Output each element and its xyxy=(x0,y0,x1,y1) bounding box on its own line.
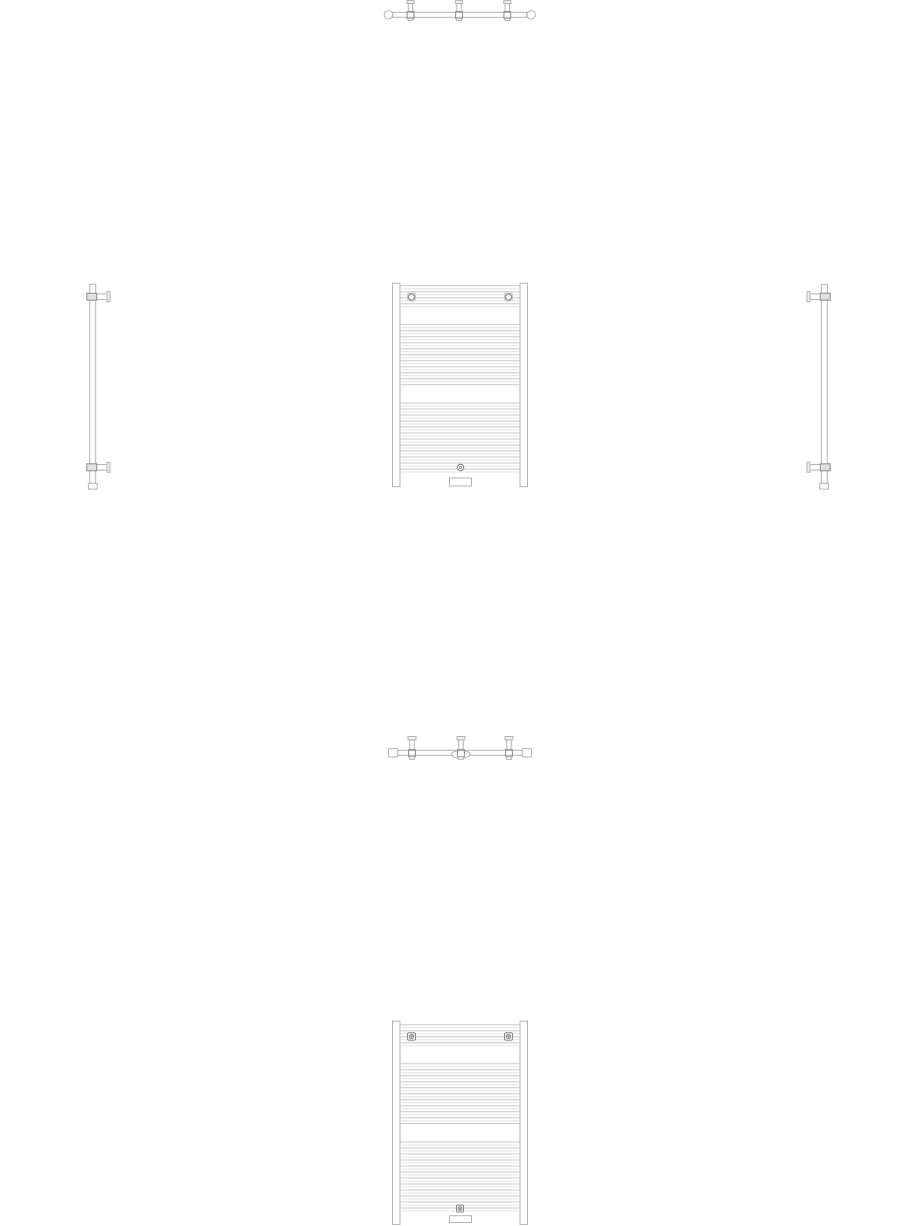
bottom-plan-view xyxy=(388,736,534,763)
top-plan-view xyxy=(384,0,536,24)
front-elevation-lower xyxy=(392,1021,528,1226)
cad-drawing-canvas xyxy=(0,0,920,1226)
front-elevation xyxy=(392,283,528,487)
left-side-elevation xyxy=(85,284,111,490)
right-side-elevation xyxy=(806,284,832,490)
